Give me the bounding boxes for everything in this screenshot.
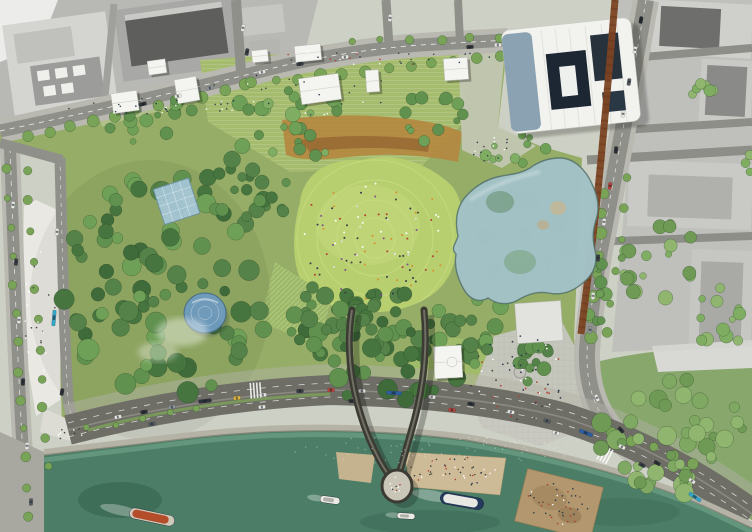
tree [464, 337, 479, 352]
tree [177, 381, 199, 403]
person-dot [405, 232, 407, 234]
tree [696, 335, 707, 346]
person-dot [399, 255, 401, 257]
tree [731, 416, 744, 429]
person-dot [521, 355, 523, 357]
person-dot [60, 438, 62, 440]
person-dot [383, 237, 385, 239]
person-dot [467, 457, 469, 459]
person-dot [360, 192, 362, 194]
person-dot [343, 237, 345, 239]
tree [689, 415, 700, 426]
person-dot [398, 487, 400, 489]
person-dot [570, 515, 572, 517]
person-dot [430, 465, 432, 467]
car-windshield [261, 406, 263, 409]
tree [524, 140, 532, 148]
person-dot [287, 54, 289, 56]
person-dot [410, 284, 412, 286]
person-dot [329, 58, 331, 60]
tree [227, 223, 244, 240]
side-street [236, 0, 241, 72]
tree [397, 287, 412, 302]
street-tree [27, 228, 34, 235]
person-dot [431, 198, 433, 200]
person-dot [547, 384, 549, 386]
tree [105, 279, 122, 296]
person-dot [295, 84, 297, 86]
person-dot [556, 495, 558, 497]
tree [300, 291, 311, 302]
street-tree [426, 58, 436, 68]
tree [99, 264, 114, 279]
tree [91, 287, 105, 301]
tree [321, 149, 328, 156]
person-dot [395, 191, 397, 193]
person-dot [221, 101, 223, 103]
person-dot [396, 446, 397, 447]
person-dot [474, 450, 475, 451]
tree [510, 153, 520, 163]
tree [596, 290, 604, 298]
tree [452, 98, 464, 110]
person-dot [310, 262, 312, 264]
tree [418, 135, 429, 146]
person-dot [146, 113, 148, 115]
street-tree [83, 424, 89, 430]
person-dot [392, 292, 394, 294]
tree [329, 368, 348, 387]
car [591, 292, 595, 299]
person-dot [551, 517, 553, 519]
car [466, 45, 473, 49]
tree [72, 244, 84, 256]
person-dot [344, 292, 346, 294]
car-windshield [609, 185, 612, 187]
person-dot [392, 488, 394, 490]
person-dot [545, 344, 547, 346]
car [448, 408, 455, 412]
person-dot [425, 269, 427, 271]
person-dot [558, 391, 560, 393]
street-tree [349, 38, 356, 45]
person-dot [555, 358, 557, 360]
person-dot [295, 451, 296, 452]
person-dot [432, 255, 434, 257]
tree [662, 374, 676, 388]
tree [294, 143, 306, 155]
person-dot [120, 106, 122, 108]
tree [378, 327, 394, 343]
tree [255, 321, 272, 338]
person-dot [256, 75, 258, 77]
tree [134, 290, 146, 302]
person-dot [445, 465, 447, 467]
person-dot [303, 81, 305, 83]
street-tree [23, 195, 32, 204]
person-dot [558, 390, 560, 392]
tree [454, 118, 460, 124]
car [296, 389, 303, 393]
person-dot [362, 222, 364, 224]
person-dot [135, 105, 137, 107]
person-dot [364, 250, 366, 252]
person-dot [304, 233, 306, 235]
tree [716, 430, 734, 448]
person-dot [374, 196, 376, 198]
person-dot [395, 199, 397, 201]
street-tree [438, 36, 447, 45]
person-dot [565, 506, 567, 508]
site-plan-svg [0, 0, 752, 532]
tree [224, 151, 241, 168]
person-dot [402, 266, 404, 268]
person-dot [61, 429, 63, 431]
person-dot [442, 474, 444, 476]
person-dot [400, 62, 402, 64]
tree [243, 104, 255, 116]
side-street [386, 0, 389, 46]
tree [220, 286, 230, 296]
person-dot [480, 151, 482, 153]
street-tree [13, 368, 22, 377]
person-dot [485, 476, 487, 478]
person-dot [506, 147, 508, 149]
person-dot [226, 108, 228, 110]
person-dot [433, 461, 434, 462]
car [296, 62, 303, 67]
car-windshield [18, 319, 21, 321]
tree [282, 178, 291, 187]
person-dot [516, 419, 518, 421]
person-dot [68, 108, 70, 110]
person-dot [562, 495, 564, 497]
person-dot [359, 261, 361, 263]
side-street [458, 0, 460, 42]
person-dot [414, 439, 415, 440]
person-dot [558, 510, 560, 512]
person-dot [166, 110, 168, 112]
person-dot [480, 472, 482, 474]
person-dot [525, 388, 527, 390]
person-dot [495, 448, 496, 449]
person-dot [247, 83, 249, 85]
tree [626, 285, 640, 299]
person-dot [509, 369, 511, 371]
tree [406, 327, 416, 337]
person-dot [362, 246, 364, 248]
car [602, 218, 606, 225]
tree [198, 278, 209, 289]
car-windshield [391, 392, 395, 395]
person-dot [387, 218, 389, 220]
person-dot [356, 254, 358, 256]
tree [633, 433, 645, 445]
person-dot [481, 361, 483, 363]
person-dot [288, 79, 290, 81]
tree [432, 124, 444, 136]
tree [105, 123, 115, 133]
tree [321, 324, 332, 335]
person-dot [416, 229, 418, 231]
street-tree [405, 36, 414, 45]
person-dot [371, 448, 372, 449]
person-dot [532, 370, 534, 372]
tree [131, 181, 148, 198]
car-windshield [262, 394, 264, 397]
tree [688, 425, 705, 442]
person-dot [48, 294, 50, 296]
person-dot [27, 351, 29, 353]
person-dot [409, 269, 411, 271]
person-dot [486, 437, 487, 438]
street-tree [113, 422, 119, 428]
person-dot [510, 441, 511, 442]
car-windshield [236, 397, 238, 400]
car [11, 201, 15, 208]
person-dot [407, 251, 409, 253]
person-dot [571, 495, 573, 497]
tree [658, 291, 673, 306]
person-dot [575, 495, 577, 497]
person-dot [291, 59, 293, 61]
car-windshield [22, 381, 25, 383]
person-dot [356, 237, 358, 239]
person-dot [178, 109, 180, 111]
person-dot [73, 429, 75, 431]
tree [287, 327, 296, 336]
bridge-viewpoint-tip [382, 470, 412, 502]
person-dot [377, 278, 379, 280]
tree [148, 296, 159, 307]
tree [193, 237, 210, 254]
person-dot [364, 214, 366, 216]
tree [415, 92, 428, 105]
person-dot [507, 362, 509, 364]
street-tree [87, 115, 99, 127]
person-dot [424, 456, 425, 457]
person-dot [587, 508, 589, 510]
tree [634, 476, 646, 488]
street-tree [37, 402, 47, 412]
person-dot [535, 402, 537, 404]
car-windshield [56, 231, 59, 233]
street-tree [623, 174, 631, 182]
person-dot [513, 365, 515, 367]
person-dot [439, 264, 441, 266]
person-dot [339, 59, 341, 61]
tree [213, 168, 225, 180]
person-dot [483, 440, 484, 441]
person-dot [455, 458, 456, 459]
person-dot [396, 489, 398, 491]
tree [631, 391, 646, 406]
person-dot [333, 458, 334, 459]
person-dot [478, 356, 480, 358]
person-dot [401, 451, 402, 452]
car [327, 388, 334, 392]
person-dot [567, 521, 569, 523]
person-dot [417, 212, 419, 214]
tree [284, 87, 293, 96]
person-dot [536, 381, 538, 383]
tree [697, 314, 705, 322]
person-dot [317, 56, 319, 58]
person-dot [385, 460, 386, 461]
person-dot [336, 52, 338, 54]
person-dot [506, 142, 508, 144]
tree [597, 317, 605, 325]
street-tree [406, 61, 416, 71]
person-dot [54, 307, 56, 309]
person-dot [520, 371, 522, 373]
person-dot [402, 255, 404, 257]
car-windshield [597, 257, 600, 259]
car-windshield [53, 315, 56, 320]
person-dot [581, 503, 583, 505]
person-dot [470, 474, 472, 476]
tree [624, 415, 638, 429]
person-dot [445, 468, 447, 470]
person-dot [474, 150, 476, 152]
person-dot [402, 455, 403, 456]
person-dot [493, 396, 495, 398]
person-dot [483, 146, 485, 148]
tree [112, 319, 130, 337]
car-windshield [351, 400, 353, 403]
person-dot [380, 231, 382, 233]
tree [154, 112, 160, 118]
person-dot [441, 453, 442, 454]
person-dot [415, 218, 417, 220]
person-dot [428, 470, 430, 472]
concert-hall-building [501, 16, 650, 140]
person-dot [556, 489, 558, 491]
person-dot [502, 449, 503, 450]
tree [216, 203, 229, 216]
tree [77, 339, 99, 361]
person-dot [495, 379, 497, 381]
person-dot [322, 224, 324, 226]
person-dot [483, 444, 484, 445]
tree [692, 393, 708, 409]
person-dot [231, 110, 233, 112]
person-dot [552, 504, 554, 506]
person-dot [414, 475, 416, 477]
person-dot [343, 459, 344, 460]
tree [404, 346, 420, 362]
person-dot [457, 469, 459, 471]
street-tree [619, 204, 628, 213]
tree [390, 306, 401, 317]
person-dot [405, 280, 407, 282]
tree [254, 130, 264, 140]
person-dot [548, 448, 549, 449]
tree [711, 295, 723, 307]
person-dot [579, 496, 581, 498]
car-windshield [344, 56, 346, 59]
person-dot [533, 497, 535, 499]
person-dot [42, 331, 44, 333]
tree [254, 195, 266, 207]
person-dot [58, 435, 60, 437]
tree [69, 314, 86, 331]
person-dot [502, 363, 504, 365]
tree [663, 220, 676, 233]
person-dot [78, 428, 80, 430]
person-dot [45, 352, 47, 354]
street-tree [16, 396, 26, 406]
person-dot [398, 462, 399, 463]
person-dot [372, 235, 374, 237]
tree [666, 451, 676, 461]
person-dot [409, 208, 411, 210]
person-dot [334, 243, 336, 245]
person-dot [519, 335, 521, 337]
person-dot [155, 103, 157, 105]
tree [145, 254, 163, 272]
person-dot [219, 110, 221, 112]
person-dot [449, 473, 451, 475]
person-dot [459, 62, 461, 64]
tree [242, 211, 252, 221]
car [17, 316, 21, 323]
tree [480, 150, 491, 161]
tree [266, 192, 278, 204]
person-dot [24, 320, 26, 322]
person-dot [380, 80, 382, 82]
person-dot [365, 186, 367, 188]
person-dot [333, 205, 335, 207]
tree [83, 215, 96, 228]
person-dot [265, 87, 267, 89]
person-dot [176, 100, 178, 102]
person-dot [318, 94, 320, 96]
person-dot [547, 484, 549, 486]
person-dot [341, 103, 343, 105]
person-dot [486, 443, 487, 444]
person-dot [523, 447, 524, 448]
person-dot [514, 441, 515, 442]
tree [235, 138, 250, 153]
car-windshield [589, 329, 592, 331]
street-tree [30, 258, 38, 266]
tree [294, 334, 305, 345]
person-dot [31, 327, 33, 329]
person-dot [326, 253, 328, 255]
person-dot [471, 483, 473, 485]
street-tree [220, 85, 231, 96]
tree [231, 301, 252, 322]
car-windshield [171, 406, 173, 409]
person-dot [141, 98, 143, 100]
person-dot [573, 513, 575, 515]
tree [648, 464, 665, 481]
person-dot [469, 53, 471, 55]
person-dot [357, 216, 359, 218]
person-dot [521, 452, 522, 453]
person-dot [354, 253, 356, 255]
tree [733, 336, 743, 346]
person-dot [380, 294, 382, 296]
tree [230, 186, 238, 194]
person-dot [310, 114, 312, 116]
person-dot [214, 104, 216, 106]
tree [118, 301, 138, 321]
person-dot [470, 385, 472, 387]
person-dot [351, 262, 353, 264]
person-dot [422, 449, 423, 450]
